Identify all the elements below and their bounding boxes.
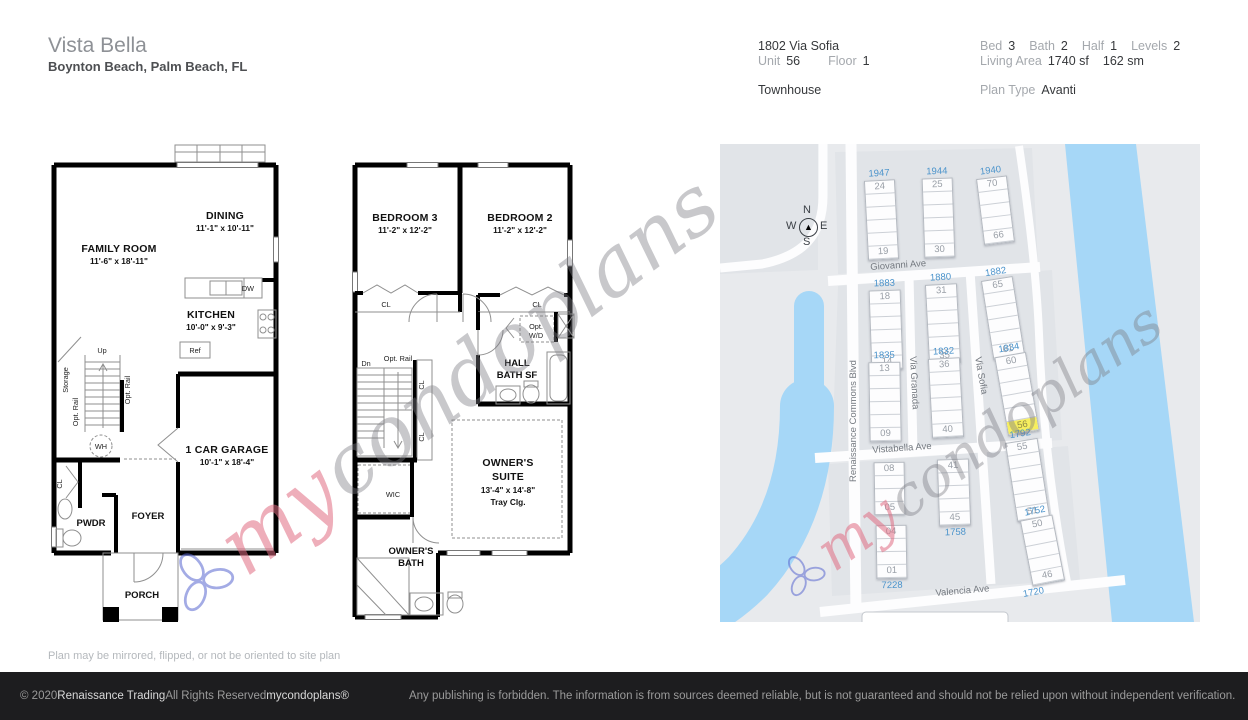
label-ref: Ref xyxy=(189,346,201,355)
map-building: 36401832 xyxy=(928,357,964,439)
map-building: 41451758 xyxy=(937,458,971,526)
map-building: 25301944 xyxy=(922,177,956,258)
floorplan-1: FAMILY ROOM 11'-6" x 18'-11" DINING 11'-… xyxy=(52,145,279,622)
map-unit-cell xyxy=(871,329,901,343)
room-label-hallbath-2: BATH SF xyxy=(497,370,538,381)
label-cl-b2: CL xyxy=(532,300,541,309)
room-dims-suite: 13'-4" x 14'-8" xyxy=(481,485,535,495)
room-label-suite-1: OWNER'S xyxy=(482,457,533,469)
room-label-obath-1: OWNER'S xyxy=(388,546,433,557)
footer-copyright: © 2020 xyxy=(20,690,57,702)
map-unit-cell xyxy=(939,485,969,499)
unit-address: 1802 Via Sofia xyxy=(758,39,839,53)
map-building: 13091835 xyxy=(868,362,901,443)
plan-type-value: Avanti xyxy=(1041,83,1076,97)
map-unit-cell xyxy=(924,205,953,219)
map-unit-cell xyxy=(871,316,901,330)
map-unit-cell: 04 xyxy=(877,526,906,540)
map-unit-cell: 40 xyxy=(932,423,963,438)
map-unit-cell xyxy=(870,415,900,429)
map-unit-cell: 18 xyxy=(870,291,900,305)
map-building: 50461752 xyxy=(1020,514,1065,586)
map-building: 04017228 xyxy=(876,525,908,580)
label-storage: Storage xyxy=(61,367,70,393)
room-label-obath-2: BATH xyxy=(398,558,424,569)
map-unit-cell: 08 xyxy=(875,463,904,477)
map-unit-cell: 09 xyxy=(870,428,900,442)
footer-company: Renaissance Trading xyxy=(57,690,165,702)
label-cl-linen1: CL xyxy=(417,380,426,389)
map-building: 60561834 xyxy=(994,352,1039,436)
map-unit-cell xyxy=(870,376,900,390)
site-map: Giovanni Ave Vistabella Ave Valencia Ave… xyxy=(720,144,1200,622)
map-unit-cell xyxy=(870,389,900,403)
map-building: 24191947 xyxy=(864,179,899,261)
property-type: Townhouse xyxy=(758,83,821,97)
bed-value: 3 xyxy=(1008,39,1015,53)
bath-value: 2 xyxy=(1061,39,1068,53)
label-opt-wd-2: W/D xyxy=(529,331,543,340)
plan-type-label: Plan Type xyxy=(980,83,1035,97)
label-cl-f1: CL xyxy=(55,479,64,488)
room-dims-garage: 10'-1" x 18'-4" xyxy=(200,457,254,467)
footer-rights: All Rights Reserved xyxy=(165,690,266,702)
footer-bar: © 2020 Renaissance Trading All Rights Re… xyxy=(0,672,1248,720)
room-label-foyer: FOYER xyxy=(132,511,165,522)
label-opt-rail-1: Opt. Rail xyxy=(71,397,80,426)
map-unit-cell xyxy=(938,472,968,486)
room-label-kitchen: KITCHEN xyxy=(187,309,235,321)
bath-label: Bath xyxy=(1029,39,1055,53)
half-value: 1 xyxy=(1110,39,1117,53)
label-up: Up xyxy=(97,346,106,355)
map-unit-cell: 13 xyxy=(869,363,899,377)
room-dims-bedroom2: 11'-2" x 12'-2" xyxy=(493,225,547,235)
map-unit-cell: 01 xyxy=(877,565,906,579)
plan-type-line: Plan TypeAvanti xyxy=(980,83,1076,97)
room-label-hallbath-1: HALL xyxy=(504,358,530,369)
map-unit-cell xyxy=(875,476,904,490)
map-unit-cell: 19 xyxy=(868,245,898,259)
footer-disclaimer: Any publishing is forbidden. The informa… xyxy=(409,690,1235,702)
room-dims-kitchen: 10'-0" x 9'-3" xyxy=(186,322,236,332)
room-label-garage: 1 CAR GARAGE xyxy=(186,444,269,456)
map-unit-cell xyxy=(875,489,904,503)
floorplans-drawing: FAMILY ROOM 11'-6" x 18'-11" DINING 11'-… xyxy=(0,0,700,680)
half-label: Half xyxy=(1082,39,1104,53)
room-label-pwdr: PWDR xyxy=(76,518,105,529)
map-unit-cell: 30 xyxy=(925,243,954,257)
map-building-number: 1883 xyxy=(869,278,899,290)
label-opt-rail-2: Opt. Rail xyxy=(123,375,132,404)
room-label-family: FAMILY ROOM xyxy=(81,243,156,255)
floor-value: 1 xyxy=(863,54,870,68)
map-unit-cell xyxy=(924,230,953,244)
label-tray-clg: Tray Clg. xyxy=(490,497,525,507)
room-label-porch: PORCH xyxy=(125,590,159,601)
bed-label: Bed xyxy=(980,39,1002,53)
map-unit-cell: 25 xyxy=(923,179,952,193)
map-building-number: 7228 xyxy=(877,580,906,592)
label-opt-wd-1: Opt. xyxy=(529,322,543,331)
map-building: 0805 xyxy=(874,462,906,516)
map-building-number: 1947 xyxy=(864,167,894,180)
plan-orientation-note: Plan may be mirrored, flipped, or not be… xyxy=(48,650,340,662)
room-label-suite-2: SUITE xyxy=(492,471,524,483)
map-building-number: 1832 xyxy=(928,345,959,358)
label-dn: Dn xyxy=(361,359,370,368)
map-buildings-layer: 2419194725301944706619401814188331351880… xyxy=(720,144,1200,622)
label-cl-b3: CL xyxy=(381,300,390,309)
map-unit-cell: 66 xyxy=(983,228,1013,244)
unit-floor-line: Unit56Floor1 xyxy=(758,54,870,68)
footer-brand: mycondoplans® xyxy=(266,690,349,702)
label-cl-linen2: CL xyxy=(417,432,426,441)
map-building-number: 1944 xyxy=(922,166,951,178)
map-unit-cell xyxy=(877,552,906,566)
floor-label: Floor xyxy=(828,54,856,68)
map-building-number: 1835 xyxy=(869,350,899,362)
map-unit-cell xyxy=(877,539,906,553)
map-unit-cell xyxy=(924,217,953,231)
room-label-bedroom3: BEDROOM 3 xyxy=(372,212,437,224)
map-unit-cell xyxy=(870,402,900,416)
map-unit-cell: 05 xyxy=(875,502,904,515)
room-label-dining: DINING xyxy=(206,210,244,222)
map-unit-cell: 41 xyxy=(938,459,968,473)
living-area-sf: 1740 sf xyxy=(1048,54,1089,68)
unit-label: Unit xyxy=(758,54,780,68)
map-building-number: 1880 xyxy=(925,271,956,284)
map-unit-cell xyxy=(870,303,900,317)
room-dims-dining: 11'-1" x 10'-11" xyxy=(196,223,254,233)
levels-label: Levels xyxy=(1131,39,1167,53)
floorplan-2: BEDROOM 3 11'-2" x 12'-2" BEDROOM 2 11'-… xyxy=(353,163,575,620)
unit-value: 56 xyxy=(786,54,800,68)
room-label-bedroom2: BEDROOM 2 xyxy=(487,212,552,224)
map-unit-cell xyxy=(923,192,952,206)
bed-bath-line: Bed3Bath2Half1Levels2 xyxy=(980,39,1180,53)
levels-value: 2 xyxy=(1173,39,1180,53)
map-building: 70661940 xyxy=(976,175,1015,245)
living-area-label: Living Area xyxy=(980,54,1042,68)
map-building-number: 1758 xyxy=(940,526,970,538)
living-area-sm: 162 sm xyxy=(1103,54,1144,68)
map-unit-cell xyxy=(939,498,969,512)
label-wic: WIC xyxy=(386,490,400,499)
map-unit-cell: 45 xyxy=(940,511,970,525)
map-building-number: 1940 xyxy=(976,164,1006,178)
room-dims-family: 11'-6" x 18'-11" xyxy=(90,256,148,266)
map-building-number: 1720 xyxy=(1022,585,1045,600)
label-wh: WH xyxy=(95,442,107,451)
room-dims-bedroom3: 11'-2" x 12'-2" xyxy=(378,225,432,235)
living-area-line: Living Area1740 sf162 sm xyxy=(980,54,1144,68)
label-opt-rail-f2: Opt. Rail xyxy=(384,354,413,363)
label-dw: DW xyxy=(242,284,254,293)
